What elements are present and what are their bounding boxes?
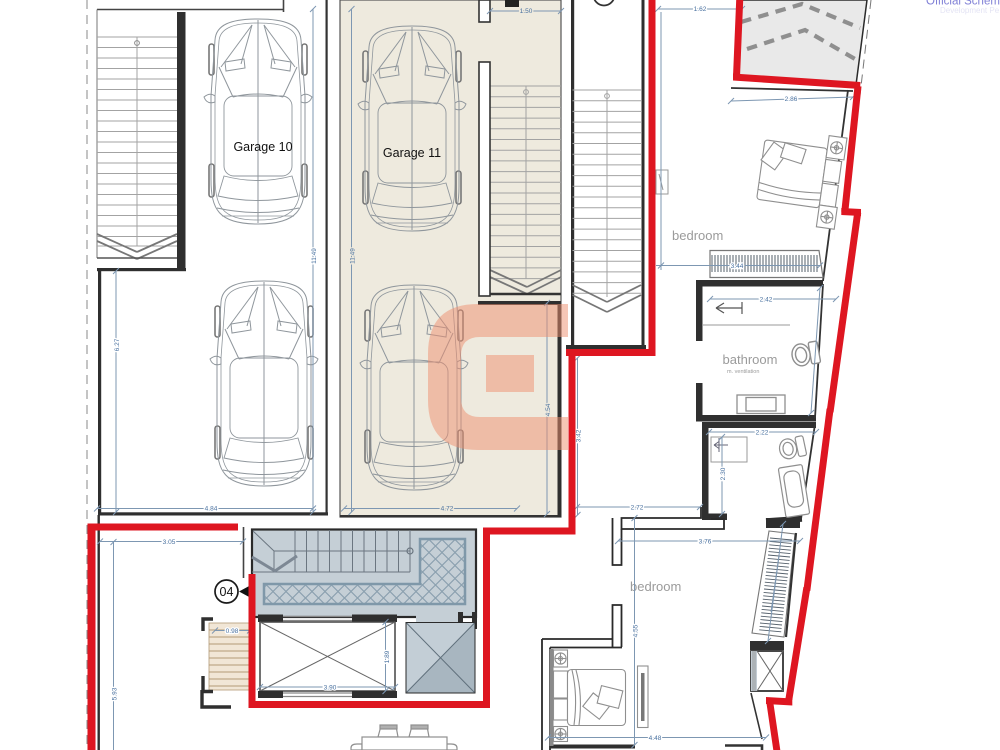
svg-text:m. ventilation: m. ventilation <box>727 369 759 375</box>
svg-text:bedroom: bedroom <box>630 579 681 594</box>
svg-text:bedroom: bedroom <box>672 228 723 243</box>
svg-text:2.86: 2.86 <box>785 96 798 103</box>
svg-text:04: 04 <box>220 585 234 599</box>
svg-text:bathroom: bathroom <box>723 352 778 367</box>
svg-text:1.62: 1.62 <box>694 6 707 13</box>
svg-text:2.72: 2.72 <box>631 505 644 512</box>
svg-text:3.90: 3.90 <box>324 685 337 692</box>
svg-text:11.49: 11.49 <box>311 248 318 264</box>
svg-text:4.55: 4.55 <box>633 624 640 637</box>
svg-text:11.49: 11.49 <box>350 248 357 264</box>
svg-text:0.98: 0.98 <box>226 628 239 635</box>
svg-text:Garage 11: Garage 11 <box>383 146 441 160</box>
svg-text:3.44: 3.44 <box>731 263 744 270</box>
svg-text:4.48: 4.48 <box>649 735 662 742</box>
svg-text:4.54: 4.54 <box>545 403 552 416</box>
svg-text:Development Pe: Development Pe <box>940 6 1000 15</box>
svg-text:4.84: 4.84 <box>205 506 218 513</box>
svg-text:2.22: 2.22 <box>756 430 769 437</box>
svg-text:1.89: 1.89 <box>384 650 391 663</box>
svg-text:3.05: 3.05 <box>163 539 176 546</box>
svg-text:2.30: 2.30 <box>720 467 727 480</box>
svg-text:Garage 10: Garage 10 <box>233 140 292 154</box>
svg-text:4.72: 4.72 <box>441 506 454 513</box>
svg-text:3.42: 3.42 <box>576 429 583 442</box>
svg-text:5.93: 5.93 <box>112 687 119 700</box>
svg-text:1.50: 1.50 <box>520 8 533 15</box>
svg-text:2.42: 2.42 <box>760 297 773 304</box>
svg-text:3.76: 3.76 <box>699 539 712 546</box>
svg-text:6.27: 6.27 <box>114 338 121 351</box>
